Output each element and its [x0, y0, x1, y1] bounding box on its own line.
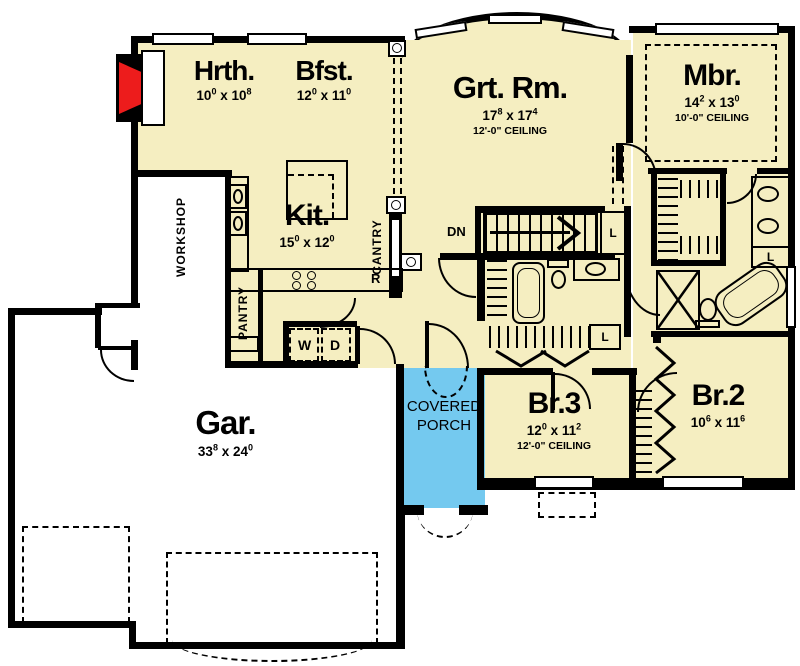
porch-step-dashed-arc	[417, 510, 473, 538]
garage-driveway-dashed-arc	[172, 640, 372, 662]
wall-mcloset-bottom	[651, 260, 726, 266]
wall-workshop-left	[131, 170, 138, 307]
room-label-kit: Kit. 150 x 120	[252, 200, 362, 250]
washer-label: W	[298, 337, 311, 353]
cooktop-burner-3	[292, 281, 301, 290]
post-column-kit-upper-circle	[391, 200, 401, 210]
wall-greatroom-right-upper	[626, 55, 633, 143]
mbr-door-leaf	[616, 143, 623, 181]
mbath-sink-2	[757, 218, 779, 234]
beam-dashed-bfst	[393, 58, 402, 194]
wall-notch-left	[95, 303, 101, 348]
mbath-toilet-base	[695, 320, 720, 328]
wall-porch-left	[396, 364, 404, 518]
workshop-door-arc	[100, 350, 134, 382]
post-column-kit-lower-circle	[406, 257, 416, 267]
garage-door-bay-1	[22, 526, 130, 623]
hallbath-toilet-bowl	[551, 270, 566, 289]
wall-laundry-bottom	[225, 361, 358, 368]
linen-label: L	[609, 226, 616, 240]
hallbath-sink	[585, 262, 606, 276]
room-dim: 150 x 120	[252, 236, 362, 250]
cantry-label: CANTRY	[370, 219, 384, 275]
linen-closet-stairs: L	[600, 211, 626, 255]
room-label-gar: Gar. 338 x 240	[163, 406, 288, 459]
room-label-br3: Br.3 120 x 112 12'-0" CEILING	[494, 388, 614, 452]
room-name: Gar.	[163, 406, 288, 441]
porch-label: COVERED PORCH	[404, 398, 484, 436]
ceiling-height: 12'-0" CEILING	[494, 441, 614, 452]
wall-notch-top	[95, 303, 140, 308]
porch-label-line2: PORCH	[404, 417, 484, 436]
kitchen-sink-upper-basin	[233, 189, 243, 204]
window-mbath	[786, 266, 796, 328]
room-label-mbr: Mbr. 142 x 130 10'-0" CEILING	[650, 60, 774, 124]
window-hrth	[152, 33, 214, 45]
window-br3	[534, 476, 594, 489]
window-br2	[662, 476, 744, 489]
linen-label: L	[601, 330, 608, 344]
kitchen-sink-lower-basin	[233, 216, 243, 231]
wall-mcloset-left	[651, 174, 657, 266]
wall-mbath-stub	[653, 331, 661, 343]
room-name: Grt. Rm.	[420, 72, 600, 105]
room-dim: 120 x 112	[494, 424, 614, 438]
stairs-dn-label: DN	[447, 224, 466, 239]
refrigerator-label: R	[371, 271, 380, 286]
mcloset-shelving-mid	[680, 236, 722, 254]
wall-foyer	[477, 253, 485, 321]
hallbath-tub-inner	[517, 268, 540, 318]
room-label-grt: Grt. Rm. 178 x 174 12'-0" CEILING	[420, 72, 600, 137]
room-name: Kit.	[252, 200, 362, 232]
fireplace-hearth	[141, 50, 165, 126]
wall-garage-right	[396, 505, 405, 649]
wall-hrth-bottom	[131, 170, 232, 177]
ceiling-height: 10'-0" CEILING	[650, 113, 774, 124]
bifold-door-hall-right-icon	[540, 350, 590, 368]
room-name: Br.3	[494, 388, 614, 420]
room-name: Br.2	[658, 380, 778, 412]
room-dim: 142 x 130	[650, 96, 774, 110]
mbath-sink-1	[757, 186, 779, 202]
wall-mbr-bottom-a	[648, 168, 727, 174]
shower-x-icon	[658, 272, 698, 328]
garage-door-bay-2	[166, 552, 378, 644]
dryer-label: D	[330, 337, 340, 353]
hallbath-toilet-tank	[547, 259, 569, 268]
ceiling-height: 12'-0" CEILING	[420, 126, 600, 137]
workshop-label: WORKSHOP	[174, 197, 188, 277]
closet-shelving-foyer	[487, 260, 507, 318]
floor-plan: L L L Hrth. 100 x 1	[0, 0, 800, 666]
wall-mbath-bottom	[651, 331, 795, 337]
room-dim: 120 x 110	[268, 89, 380, 103]
window-bay-center	[488, 14, 542, 24]
stairs-arrow-head-icon	[556, 215, 582, 251]
wall-stairs-top	[477, 206, 605, 213]
br3-stoop-dashed	[538, 492, 596, 518]
porch-label-line1: COVERED	[404, 398, 484, 417]
room-label-hrth: Hrth. 100 x 108	[168, 56, 280, 104]
room-dim: 338 x 240	[163, 445, 288, 459]
room-dim: 100 x 108	[168, 89, 280, 103]
wall-mbr-bottom-b	[757, 168, 795, 174]
window-bfst	[247, 33, 307, 45]
room-label-br2: Br.2 106 x 116	[658, 380, 778, 430]
linen-closet-hall: L	[589, 324, 621, 350]
room-name: Bfst.	[268, 56, 380, 85]
room-name: Mbr.	[650, 60, 774, 92]
wall-br3-top-a	[477, 368, 553, 375]
mcloset-shelving-left	[658, 178, 678, 260]
room-name: Hrth.	[168, 56, 280, 85]
wall-stairs-left	[475, 206, 481, 260]
room-dim: 106 x 116	[658, 416, 778, 430]
closet-shelving-hall	[489, 326, 589, 348]
window-mbr	[655, 23, 779, 35]
cooktop-burner-1	[292, 271, 301, 280]
post-column-bfst-circle	[392, 43, 402, 53]
cooktop-burner-4	[307, 281, 316, 290]
room-dim: 178 x 174	[420, 109, 600, 123]
pantry-label: PANTRY	[236, 286, 250, 340]
cooktop-burner-2	[307, 271, 316, 280]
room-label-bfst: Bfst. 120 x 110	[268, 56, 380, 104]
wall-garage-top	[8, 308, 102, 315]
wall-garage-left	[8, 308, 15, 628]
mcloset-shelving-top	[680, 180, 724, 198]
